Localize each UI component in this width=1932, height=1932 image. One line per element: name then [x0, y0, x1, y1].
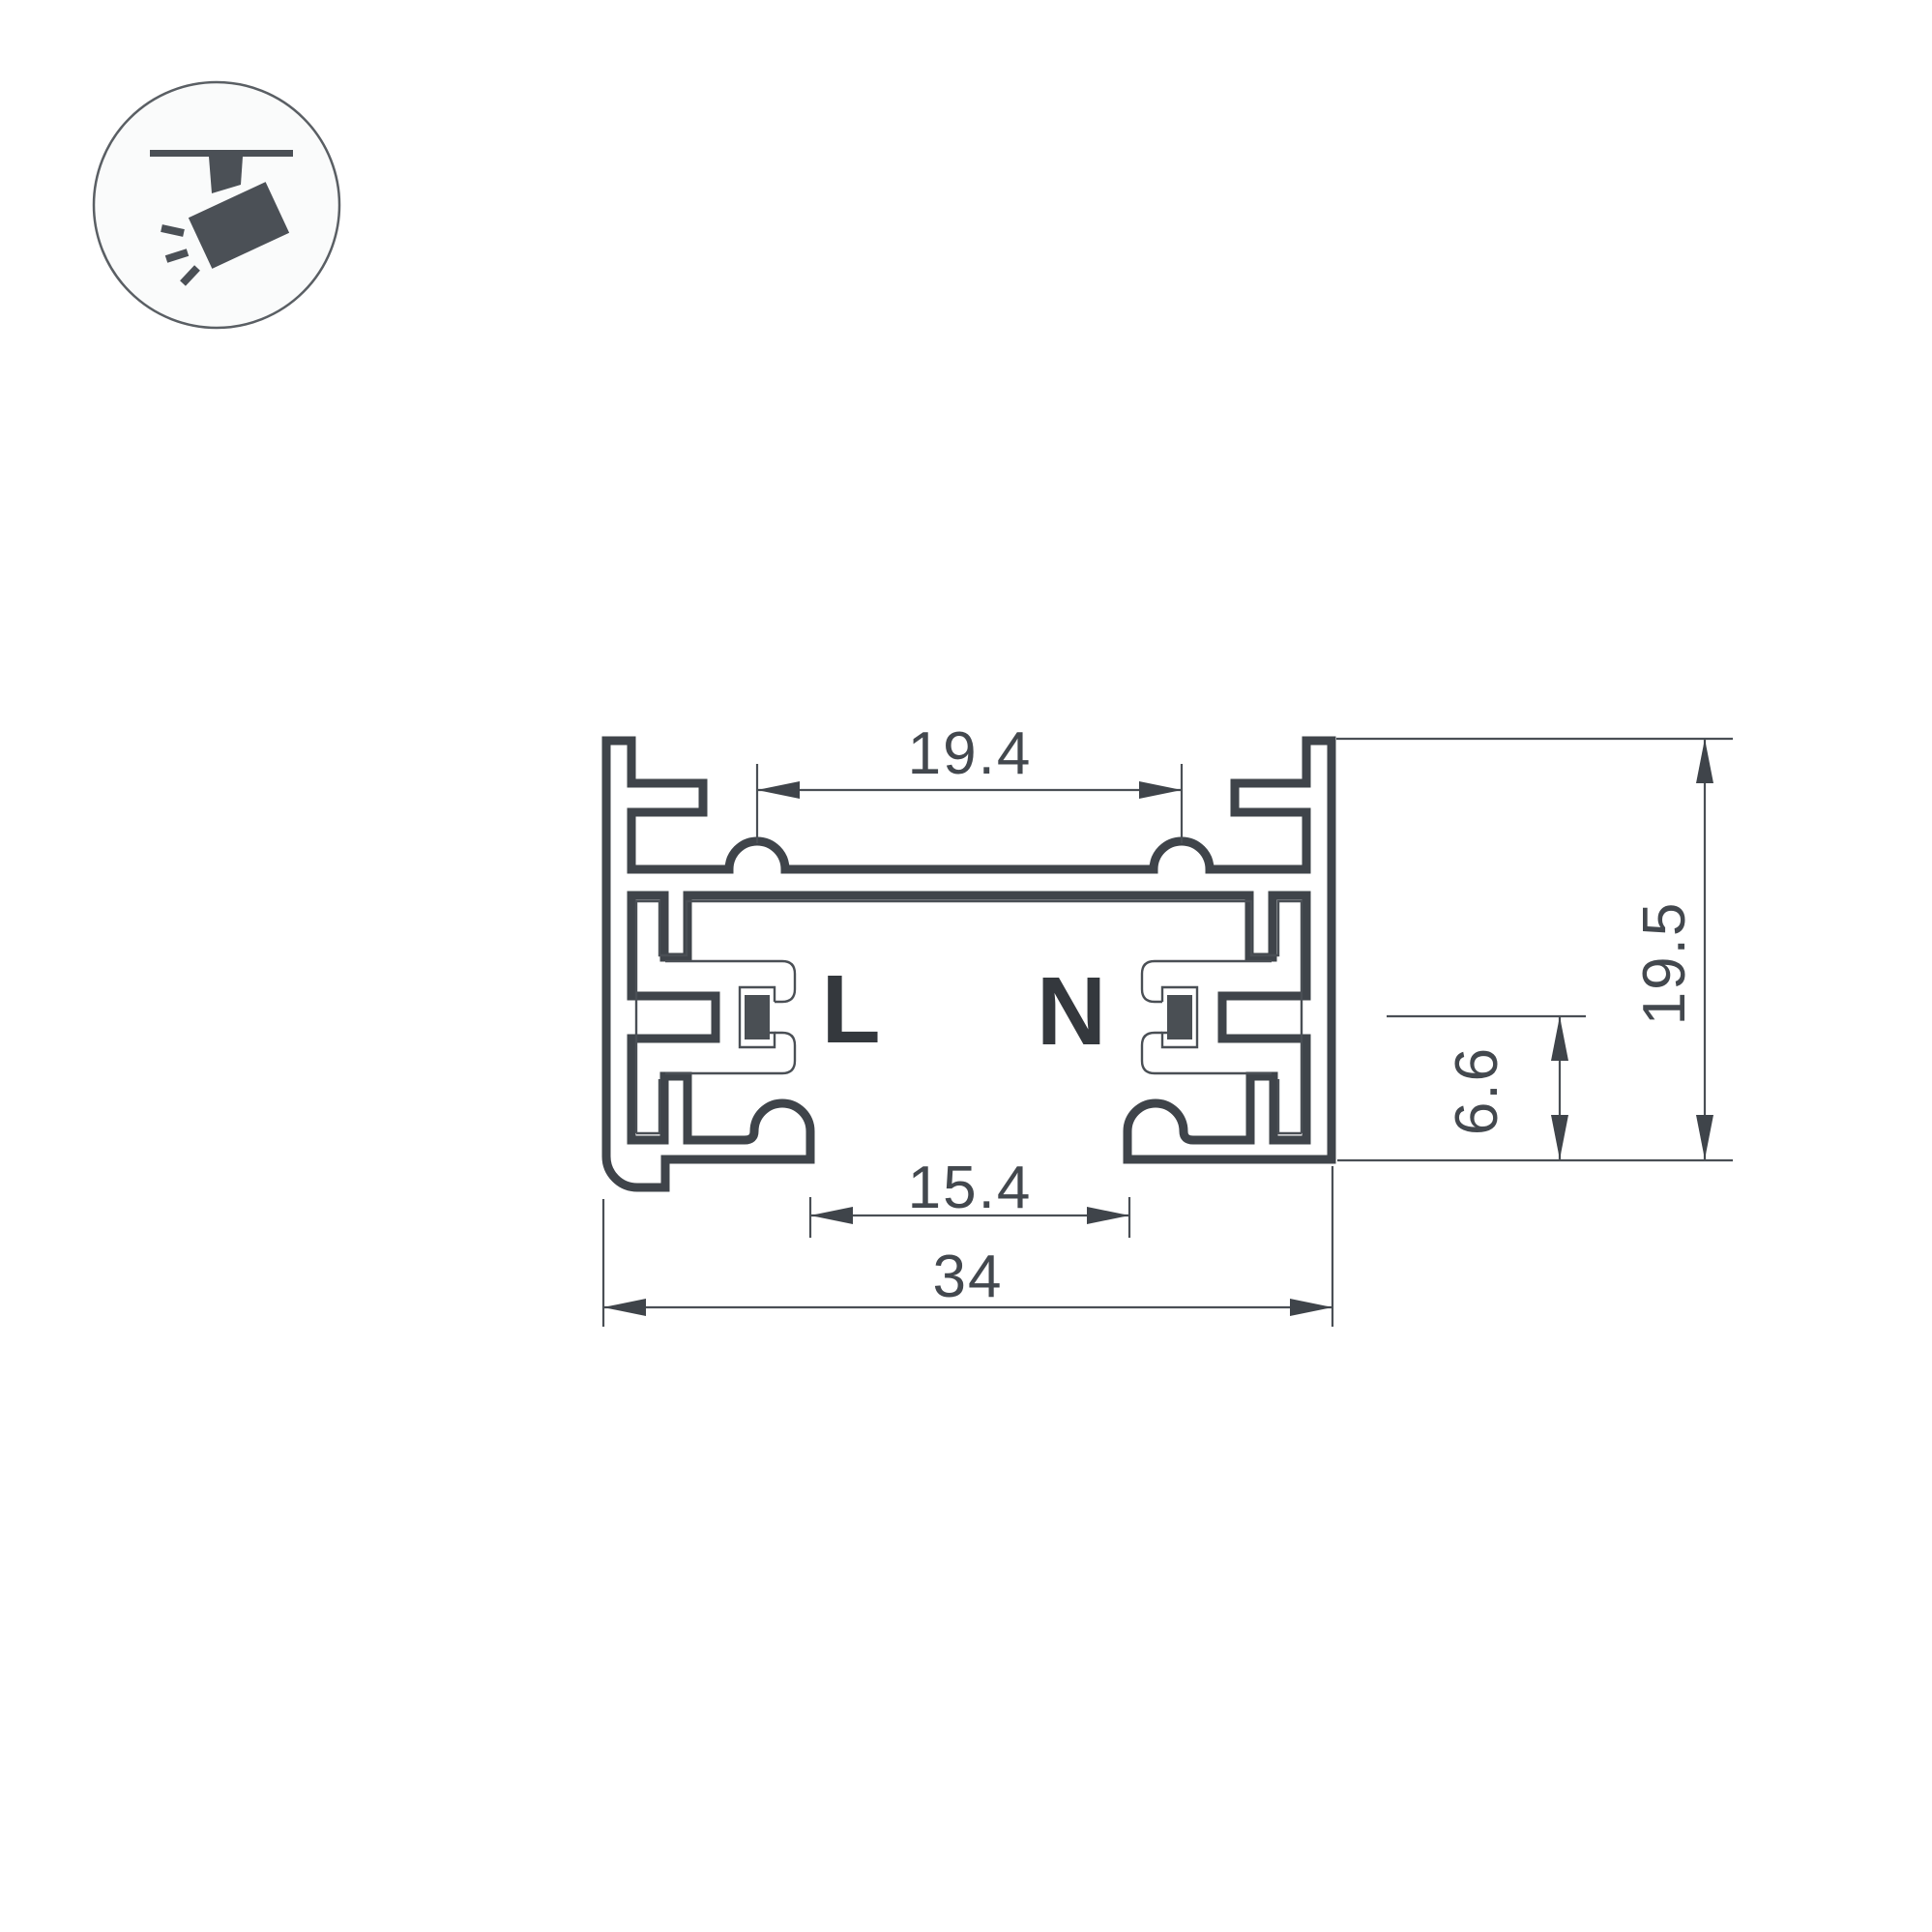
arrowhead-top — [1696, 739, 1713, 783]
dim-overall-width-label: 34 — [933, 1244, 1004, 1310]
arrowhead-bottom — [1696, 1115, 1713, 1159]
dim-overall-height: 19.5 — [1336, 739, 1733, 1160]
arrowhead-right — [1139, 781, 1182, 799]
technical-drawing-canvas: L N 19.4 19.5 6.6 15.4 — [0, 0, 1932, 1932]
label-neutral-conductor: N — [1037, 957, 1106, 1066]
conductor-neutral — [1167, 995, 1192, 1039]
drawing-page: L N 19.4 19.5 6.6 15.4 — [0, 0, 1932, 1932]
track-spotlight-icon — [94, 82, 339, 328]
dim-conductor-height: 6.6 — [1387, 1016, 1586, 1159]
dim-conductor-height-label: 6.6 — [1444, 1046, 1510, 1135]
light-ray — [161, 228, 184, 233]
insulator-liner-bottom-left — [636, 1079, 659, 1133]
label-live-conductor: L — [821, 955, 880, 1064]
profile-outline — [606, 741, 1332, 1187]
conductor-live — [745, 995, 770, 1039]
arrowhead-top — [1551, 1016, 1568, 1061]
arrowhead-left — [603, 1299, 646, 1316]
arrowhead-left — [810, 1207, 853, 1224]
insulator-liner-bottom-right — [1278, 1079, 1302, 1133]
arrowhead-left — [757, 781, 800, 799]
dim-overall-height-label: 19.5 — [1631, 901, 1698, 1026]
profile-cross-section: L N — [606, 741, 1332, 1187]
arrowhead-right — [1087, 1207, 1129, 1224]
dim-top-inner-width: 19.4 — [757, 720, 1182, 843]
insulator-liner — [636, 901, 1302, 1133]
track-bar — [150, 150, 293, 157]
arrowhead-bottom — [1551, 1115, 1568, 1159]
dim-slot-opening-label: 15.4 — [908, 1155, 1033, 1221]
insulator-liner-top — [636, 901, 1302, 1133]
dim-top-inner-width-label: 19.4 — [908, 720, 1033, 787]
dim-slot-opening: 15.4 — [810, 1155, 1129, 1238]
arrowhead-right — [1290, 1299, 1332, 1316]
